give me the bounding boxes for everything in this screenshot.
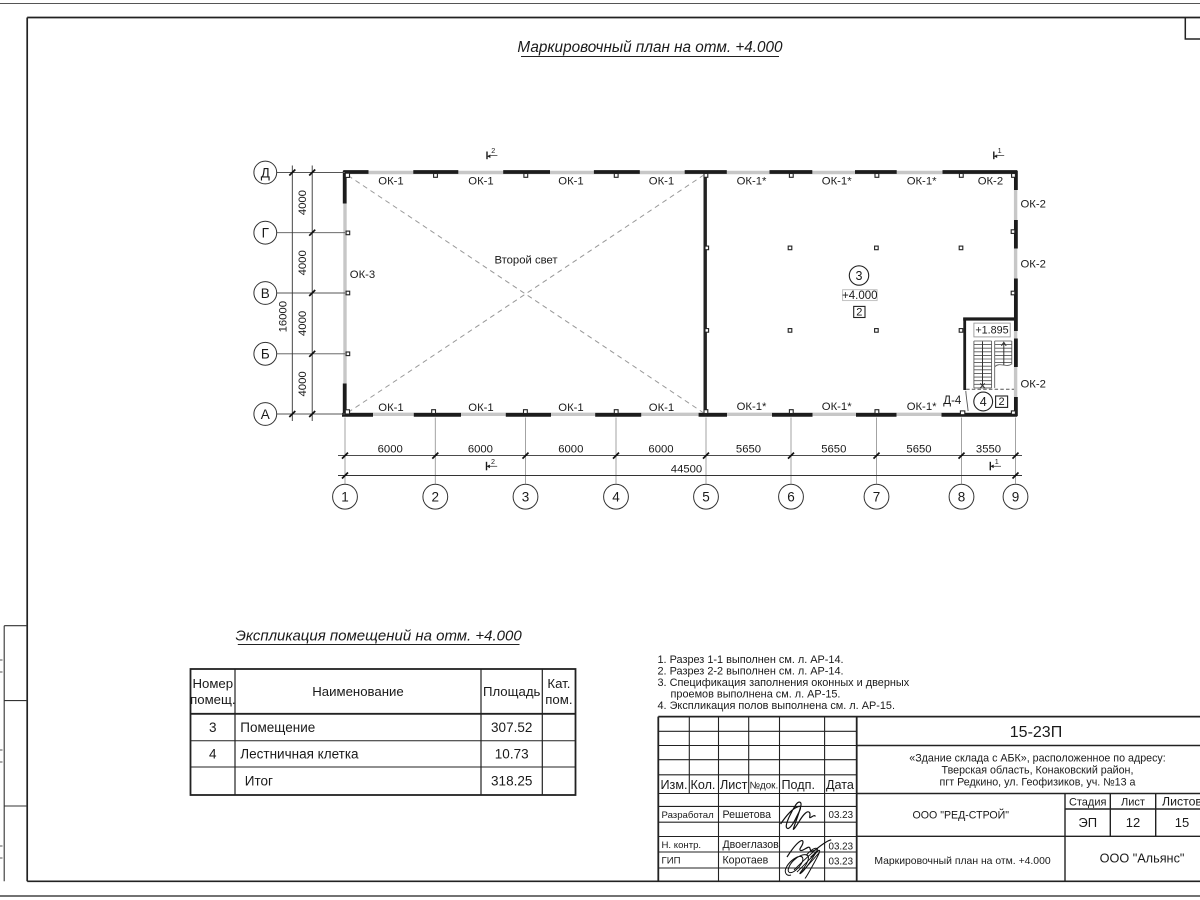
svg-text:Итог: Итог <box>245 774 273 789</box>
svg-text:4000: 4000 <box>297 371 309 396</box>
svg-text:2: 2 <box>432 490 440 505</box>
svg-text:Лист: Лист <box>720 778 748 792</box>
svg-text:ОК-1*: ОК-1* <box>737 401 767 413</box>
svg-text:8: 8 <box>958 490 966 505</box>
svg-text:Кат.: Кат. <box>547 676 570 691</box>
svg-text:помещ.: помещ. <box>190 692 235 707</box>
svg-text:Решетова: Решетова <box>723 809 772 821</box>
svg-text:ОК-1: ОК-1 <box>378 175 403 187</box>
svg-text:4000: 4000 <box>297 311 309 336</box>
svg-text:ОК-1*: ОК-1* <box>907 175 937 187</box>
svg-text:Тверская область, Конаковский: Тверская область, Конаковский район, <box>942 764 1134 776</box>
svg-text:15: 15 <box>1175 815 1189 830</box>
svg-text:4: 4 <box>612 490 620 505</box>
svg-text:4. Экспликация полов выполнена: 4. Экспликация полов выполнена см. л. АР… <box>658 700 896 712</box>
svg-text:В: В <box>261 286 270 301</box>
svg-text:Д: Д <box>261 165 270 180</box>
svg-text:5650: 5650 <box>736 444 761 456</box>
svg-text:Экспликация помещений на отм.: Экспликация помещений на отм. +4.000 <box>236 628 523 645</box>
svg-text:318.25: 318.25 <box>491 774 532 789</box>
svg-text:4000: 4000 <box>297 190 309 215</box>
svg-text:2: 2 <box>856 306 862 318</box>
svg-text:9: 9 <box>1012 490 1020 505</box>
svg-text:Кол.: Кол. <box>691 778 716 792</box>
svg-text:«Здание склада с АБК», располо: «Здание склада с АБК», расположенное по … <box>909 752 1165 764</box>
svg-text:ОК-1*: ОК-1* <box>822 175 852 187</box>
svg-text:Г: Г <box>262 226 270 241</box>
svg-text:+4.000: +4.000 <box>842 290 878 302</box>
svg-text:3: 3 <box>522 490 530 505</box>
svg-text:6000: 6000 <box>468 444 493 456</box>
svg-text:4: 4 <box>980 395 987 409</box>
svg-text:Лестничная клетка: Лестничная клетка <box>240 746 359 761</box>
svg-text:А: А <box>261 407 270 422</box>
svg-text:Б: Б <box>261 347 270 362</box>
svg-text:ОК-1: ОК-1 <box>558 175 583 187</box>
svg-text:ОК-1*: ОК-1* <box>822 401 852 413</box>
svg-text:15-23П: 15-23П <box>1010 724 1062 741</box>
svg-text:ООО "РЕД-СТРОЙ": ООО "РЕД-СТРОЙ" <box>913 809 1010 822</box>
svg-text:ОК-3: ОК-3 <box>350 269 375 281</box>
svg-text:4000: 4000 <box>297 250 309 275</box>
svg-text:ОК-1*: ОК-1* <box>737 175 767 187</box>
svg-text:6000: 6000 <box>648 444 673 456</box>
svg-text:пгт Редкино, ул. Геофизиков, у: пгт Редкино, ул. Геофизиков, уч. №13 а <box>940 776 1136 788</box>
svg-text:5650: 5650 <box>821 444 846 456</box>
svg-text:ОК-1: ОК-1 <box>649 175 674 187</box>
svg-text:5650: 5650 <box>906 444 931 456</box>
svg-text:проемов выполнена см. л. АР-15: проемов выполнена см. л. АР-15. <box>671 689 841 701</box>
svg-text:Листов: Листов <box>1162 794 1200 808</box>
svg-text:6000: 6000 <box>558 444 583 456</box>
svg-text:Маркировочный план на отм. +4.: Маркировочный план на отм. +4.000 <box>874 856 1051 867</box>
svg-text:1: 1 <box>995 457 999 466</box>
svg-text:Стадия: Стадия <box>1069 796 1107 808</box>
svg-text:Н. контр.: Н. контр. <box>662 840 702 851</box>
svg-text:ОК-1*: ОК-1* <box>907 401 937 413</box>
svg-text:5: 5 <box>702 490 710 505</box>
svg-text:Лист: Лист <box>1121 796 1145 808</box>
svg-text:ОК-2: ОК-2 <box>1021 259 1046 271</box>
svg-text:10.73: 10.73 <box>495 746 529 761</box>
svg-text:6000: 6000 <box>378 444 403 456</box>
svg-text:Второй свет: Второй свет <box>494 255 557 267</box>
svg-text:ОК-2: ОК-2 <box>1021 199 1046 211</box>
svg-text:307.52: 307.52 <box>491 720 532 735</box>
svg-text:ОК-1: ОК-1 <box>558 402 583 414</box>
svg-text:Маркировочный план на отм. +4.: Маркировочный план на отм. +4.000 <box>517 39 783 56</box>
svg-text:Коротаев: Коротаев <box>723 855 769 867</box>
svg-text:пом.: пом. <box>545 692 572 707</box>
svg-text:Разработал: Разработал <box>662 810 714 821</box>
svg-text:Двоеглазов: Двоеглазов <box>723 839 780 851</box>
svg-text:ОК-1: ОК-1 <box>378 402 403 414</box>
svg-text:3: 3 <box>209 720 217 735</box>
svg-text:03.23: 03.23 <box>829 810 854 821</box>
svg-text:4: 4 <box>209 746 217 761</box>
svg-text:Дата: Дата <box>826 778 854 792</box>
svg-text:Наименование: Наименование <box>312 684 403 699</box>
svg-text:Изм.: Изм. <box>661 778 688 792</box>
svg-text:3. Спецификация заполнения око: 3. Спецификация заполнения оконных и две… <box>658 677 910 689</box>
svg-text:Номер: Номер <box>193 676 234 691</box>
svg-text:Площадь: Площадь <box>483 684 541 699</box>
svg-text:2. Разрез 2-2 выполнен см. л.: 2. Разрез 2-2 выполнен см. л. АР-14. <box>658 666 844 678</box>
svg-text:ОК-2: ОК-2 <box>1021 379 1046 391</box>
svg-text:2: 2 <box>491 146 495 155</box>
svg-text:ГИП: ГИП <box>662 855 681 866</box>
svg-text:Помещение: Помещение <box>240 720 315 735</box>
svg-text:ОК-1: ОК-1 <box>468 402 493 414</box>
svg-text:+1.895: +1.895 <box>975 325 1008 337</box>
svg-text:№док.: №док. <box>750 780 779 791</box>
svg-text:ЭП: ЭП <box>1078 815 1097 830</box>
svg-text:ОК-2: ОК-2 <box>978 175 1003 187</box>
svg-text:03.23: 03.23 <box>829 857 854 868</box>
svg-text:ОК-1: ОК-1 <box>468 175 493 187</box>
svg-text:1: 1 <box>998 146 1002 155</box>
svg-text:Д-4: Д-4 <box>943 395 962 407</box>
svg-text:2: 2 <box>491 457 495 466</box>
svg-text:Подп.: Подп. <box>782 778 815 792</box>
svg-text:ОК-1: ОК-1 <box>649 402 674 414</box>
svg-text:3: 3 <box>856 269 863 283</box>
svg-text:16000: 16000 <box>277 301 289 332</box>
svg-text:3550: 3550 <box>976 444 1001 456</box>
svg-text:1: 1 <box>341 490 349 505</box>
svg-text:6: 6 <box>787 490 795 505</box>
svg-text:44500: 44500 <box>671 464 702 476</box>
svg-text:7: 7 <box>873 490 881 505</box>
svg-text:1. Разрез 1-1 выполнен см. л.: 1. Разрез 1-1 выполнен см. л. АР-14. <box>658 654 844 666</box>
svg-text:03.23: 03.23 <box>829 842 854 853</box>
svg-text:ООО "Альянс": ООО "Альянс" <box>1100 852 1185 866</box>
svg-text:2: 2 <box>999 396 1005 408</box>
svg-text:12: 12 <box>1126 815 1140 830</box>
